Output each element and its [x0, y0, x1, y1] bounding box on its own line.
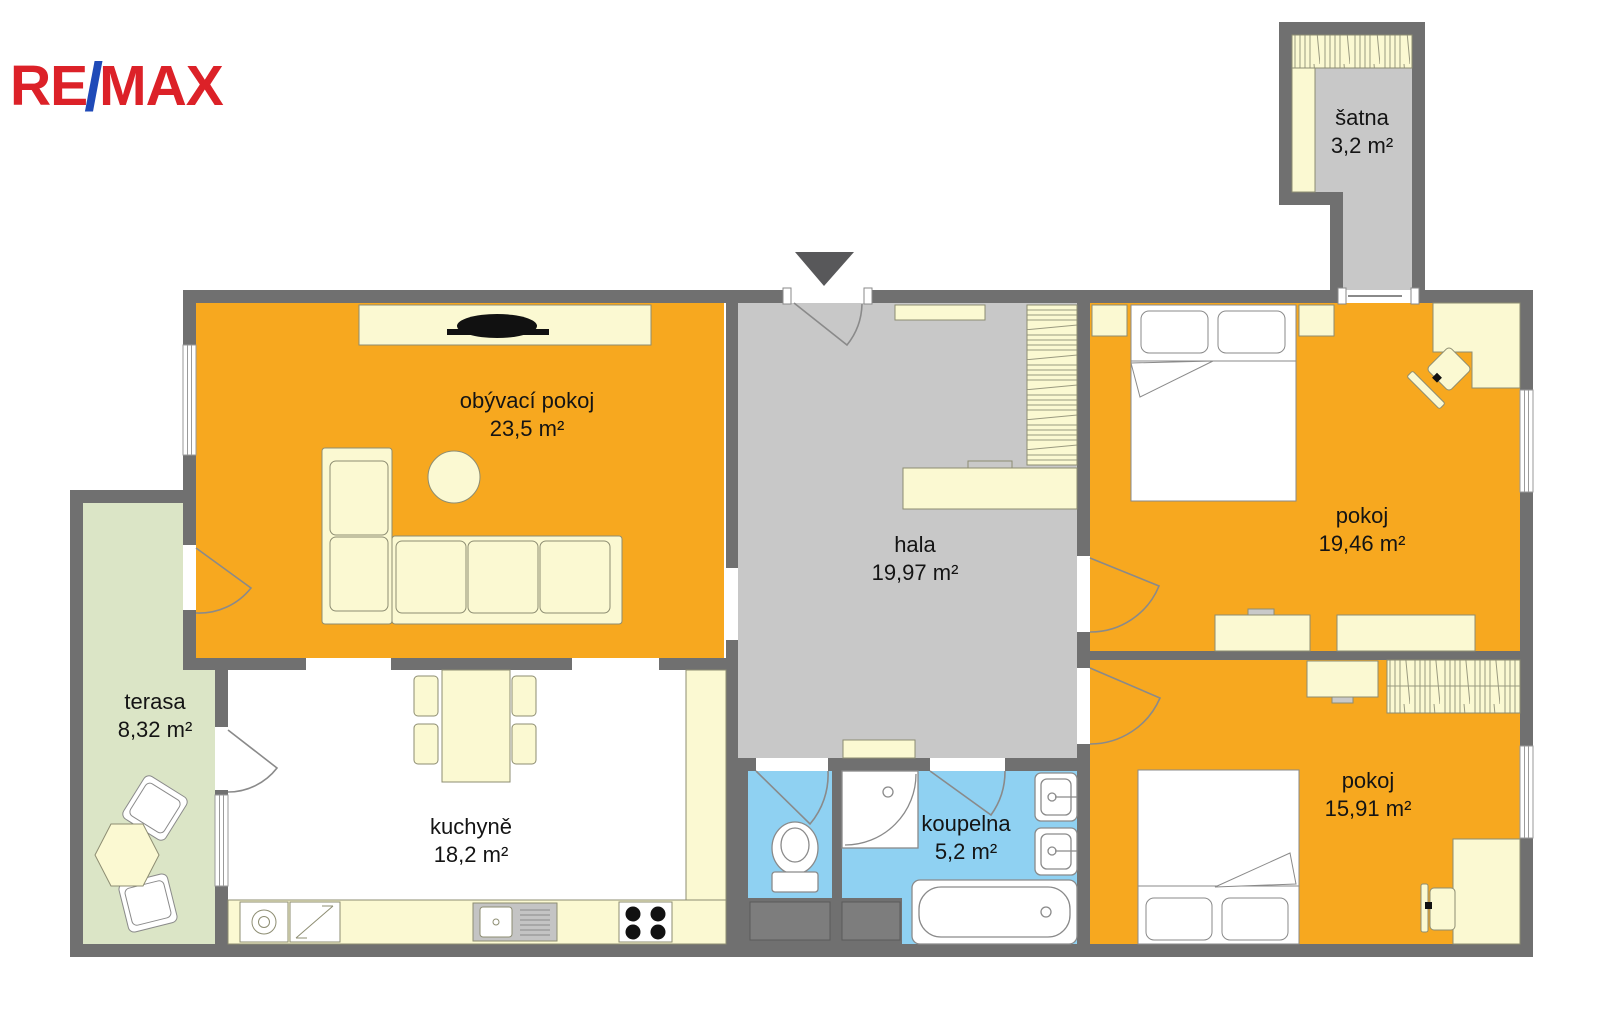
desk-chair-tab: [1332, 697, 1353, 703]
dishwasher-icon: [290, 902, 340, 942]
dining-table: [442, 670, 510, 782]
room-label-hala: hala 19,97 m²: [872, 531, 959, 587]
coffee-table: [428, 451, 480, 503]
remax-logo: RE/MAX: [10, 56, 223, 117]
double-bed: [1131, 305, 1296, 501]
bathtub-icon: [912, 880, 1077, 944]
room-label-satna: šatna 3,2 m²: [1331, 104, 1393, 160]
hall-cabinet: [843, 740, 915, 758]
room-label-koupelna: koupelna 5,2 m²: [921, 810, 1010, 866]
desk: [1307, 661, 1378, 697]
room-label-pokoj-1: pokoj 19,46 m²: [1319, 502, 1406, 558]
kitchen-counter-side: [686, 670, 726, 900]
room-label-kuchyne: kuchyně 18,2 m²: [430, 813, 512, 869]
kitchen-chair: [414, 676, 438, 716]
nightstand: [1092, 305, 1127, 336]
sink-basin-icon: [1035, 828, 1077, 875]
hall-counter: [903, 468, 1077, 509]
floorplan-canvas: RE/MAX obývací pokoj 23,5 m² hala 19,97 …: [0, 0, 1600, 1020]
shower-icon: [842, 771, 918, 848]
sink-basin-icon: [1035, 773, 1077, 821]
hall-wardrobe: [1027, 305, 1077, 465]
dresser: [1337, 615, 1475, 651]
hall-counter-tab: [968, 461, 1012, 468]
stove-icon: [619, 902, 672, 942]
desk: [1453, 839, 1520, 944]
dresser: [1215, 615, 1310, 651]
kitchen-chair: [512, 724, 536, 764]
closet-wardrobe: [1292, 35, 1412, 68]
entrance-arrow-icon: [795, 252, 854, 286]
washing-machine-icon: [240, 902, 288, 942]
window-living-room: [183, 345, 196, 455]
double-bed: [1138, 770, 1299, 944]
logo-max: MAX: [99, 54, 223, 118]
toilet-icon: [772, 822, 818, 892]
desk-chair: [1421, 884, 1455, 932]
room-label-pokoj-2: pokoj 15,91 m²: [1325, 767, 1412, 823]
logo-re: RE: [10, 54, 87, 118]
window-bedroom-1: [1520, 390, 1533, 492]
nightstand: [1299, 305, 1334, 336]
room-label-obyvaci-pokoj: obývací pokoj 23,5 m²: [460, 387, 595, 443]
shaft-boxes: [750, 902, 900, 940]
room-label-terasa: terasa 8,32 m²: [118, 688, 193, 744]
closet-cabinet: [1292, 68, 1315, 192]
sink-icon: [473, 903, 557, 941]
window-kitchen-terrace: [215, 795, 228, 886]
hall-shelf: [895, 305, 985, 320]
kitchen-chair: [512, 676, 536, 716]
window-bedroom-2: [1520, 746, 1533, 838]
dresser-tv-tab: [1248, 609, 1274, 615]
kitchen-chair: [414, 724, 438, 764]
floor-closet-corridor: [1343, 192, 1412, 303]
